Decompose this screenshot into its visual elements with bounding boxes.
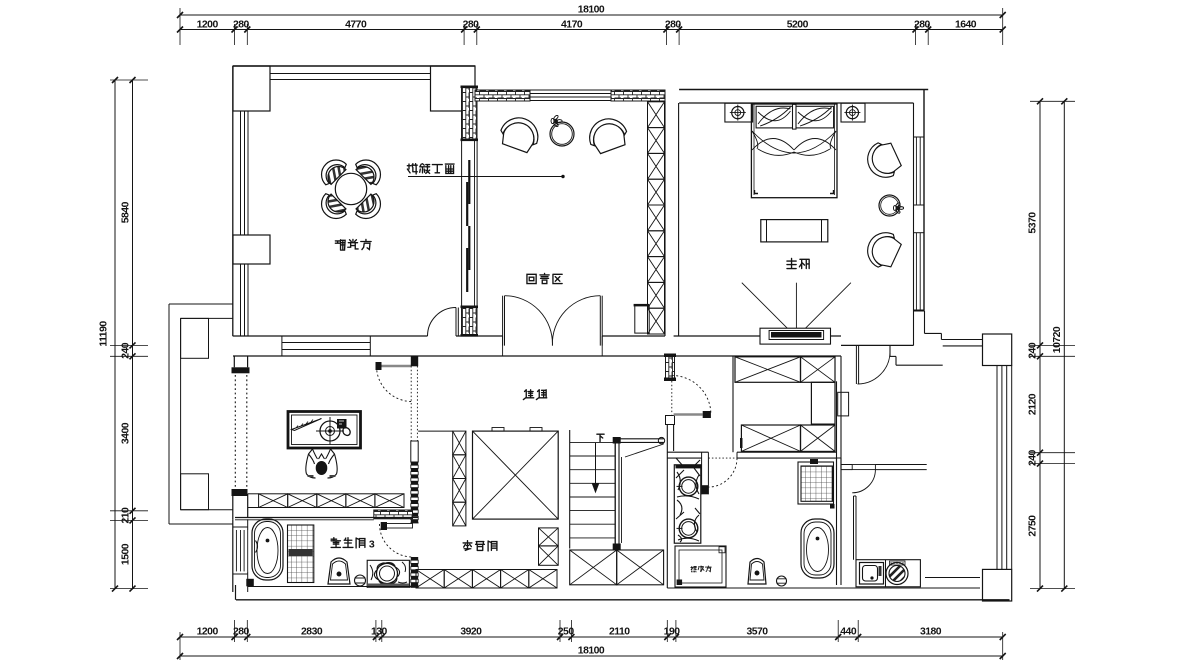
svg-text:5840: 5840 (121, 201, 132, 223)
svg-text:240: 240 (1028, 449, 1039, 466)
svg-text:2120: 2120 (1028, 393, 1039, 415)
svg-text:5370: 5370 (1028, 212, 1039, 234)
svg-text:2110: 2110 (609, 627, 630, 638)
svg-text:2750: 2750 (1028, 515, 1039, 537)
svg-text:1640: 1640 (955, 20, 977, 31)
svg-text:280: 280 (665, 20, 682, 31)
svg-text:280: 280 (233, 20, 250, 31)
svg-text:3180: 3180 (920, 627, 942, 638)
svg-text:3400: 3400 (121, 422, 132, 444)
svg-text:4170: 4170 (561, 20, 583, 31)
svg-text:3920: 3920 (460, 627, 482, 638)
svg-text:1200: 1200 (197, 20, 219, 31)
svg-text:18100: 18100 (578, 5, 605, 16)
svg-text:3570: 3570 (746, 627, 768, 638)
svg-text:2830: 2830 (301, 627, 323, 638)
svg-text:190: 190 (664, 627, 681, 638)
svg-text:440: 440 (840, 627, 857, 638)
svg-text:3: 3 (369, 539, 375, 551)
svg-text:1500: 1500 (121, 543, 132, 565)
svg-text:11190: 11190 (99, 321, 110, 347)
svg-text:250: 250 (558, 627, 575, 638)
svg-text:240: 240 (1028, 342, 1039, 359)
svg-text:130: 130 (371, 627, 388, 638)
svg-text:280: 280 (463, 20, 480, 31)
svg-text:240: 240 (121, 342, 132, 359)
svg-text:10720: 10720 (1052, 326, 1063, 353)
svg-text:18100: 18100 (578, 646, 605, 657)
svg-text:1200: 1200 (197, 627, 219, 638)
svg-text:5200: 5200 (787, 20, 809, 31)
svg-text:210: 210 (121, 507, 132, 524)
svg-text:280: 280 (233, 627, 250, 638)
svg-text:280: 280 (914, 20, 931, 31)
svg-text:4770: 4770 (345, 20, 367, 31)
